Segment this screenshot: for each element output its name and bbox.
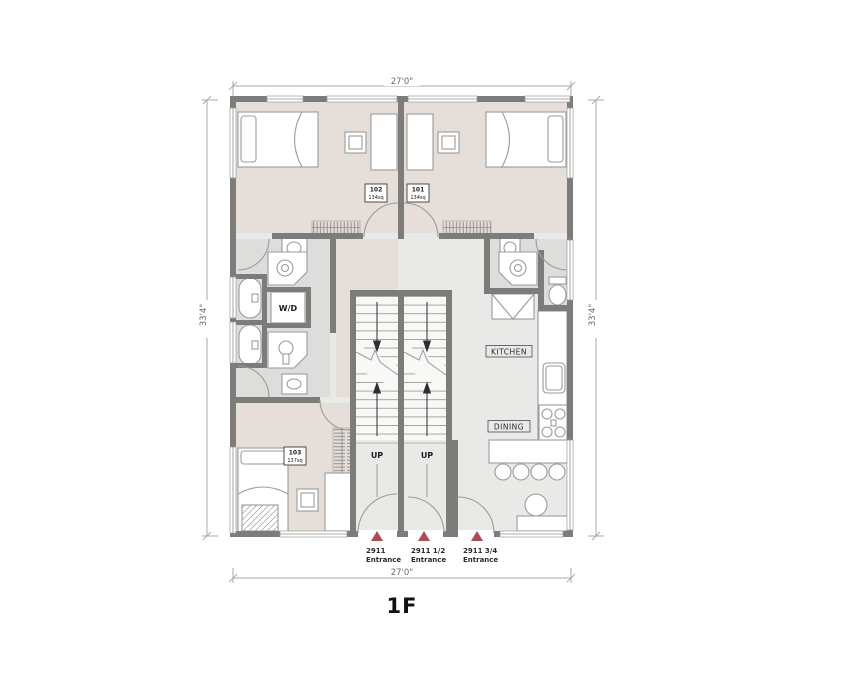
- dining-label: DINING: [488, 421, 530, 433]
- room-area-101: 134sq: [410, 195, 425, 201]
- dimension-left-text: 33'4": [199, 304, 209, 327]
- dining-label-text: DINING: [494, 423, 524, 432]
- wall-niche-2: [236, 320, 262, 325]
- wall-rbath-left: [484, 233, 490, 294]
- bed-102: [238, 112, 318, 167]
- entrance-3-address: 2911 3/4: [463, 547, 497, 555]
- closet-103-cabinet: [325, 473, 351, 531]
- bed-101: [486, 112, 566, 167]
- wall-stair-right: [446, 290, 452, 537]
- entrance-3-label: Entrance: [463, 556, 498, 564]
- entrance-1-address: 2911: [366, 547, 386, 555]
- round-table: [525, 494, 547, 516]
- wardrobe-102: [371, 114, 397, 170]
- stool: [495, 464, 511, 480]
- bed-103: [238, 448, 288, 532]
- room-number-103: 103: [289, 450, 302, 457]
- floor-plan-drawing: UP UP: [0, 0, 853, 676]
- wall-bedroom-divider: [398, 96, 404, 239]
- entrance-2-address: 2911 1/2: [411, 547, 445, 555]
- room-number-102: 102: [370, 187, 383, 194]
- bench: [517, 516, 568, 531]
- kitchen-label-text: KITCHEN: [491, 348, 527, 357]
- stairs-up-label-left: UP: [371, 451, 383, 460]
- dining-island: [489, 440, 568, 463]
- wall-stair-left: [350, 290, 356, 537]
- wall-wd-bottom: [266, 323, 311, 328]
- wall-stair-center: [398, 290, 404, 537]
- room-area-103: 137sq: [287, 458, 302, 464]
- room-tag-103: 103 137sq: [284, 447, 306, 465]
- stool: [531, 464, 547, 480]
- wardrobe-101: [407, 114, 433, 170]
- dimension-top-text: 27'0": [391, 77, 414, 87]
- wall-wd-right: [306, 287, 311, 328]
- room-area-102: 134sq: [368, 195, 383, 201]
- entrance-2-label: Entrance: [411, 556, 446, 564]
- room-tag-101: 101 134sq: [407, 184, 429, 202]
- wall-room103-top: [236, 397, 320, 403]
- dimension-bottom: 27'0": [229, 566, 575, 583]
- wall-bath-right: [330, 233, 336, 333]
- dimension-left: 33'4": [199, 96, 218, 540]
- dimension-right: 33'4": [588, 96, 604, 540]
- dimension-right-text: 33'4": [588, 304, 598, 327]
- stool: [513, 464, 529, 480]
- floor-title: 1F: [387, 594, 418, 618]
- room-tag-102: 102 134sq: [365, 184, 387, 202]
- wall-wd-top: [266, 287, 311, 292]
- toilet-bowl: [549, 285, 566, 305]
- nightstand-103-top: [301, 493, 314, 507]
- wall-bedroom-hall-left: [272, 233, 363, 239]
- fridge: [492, 294, 534, 319]
- stool: [549, 464, 565, 480]
- desk-102-top: [349, 136, 362, 149]
- floor-plan-page: UP UP: [0, 0, 853, 676]
- kitchen-label: KITCHEN: [486, 346, 532, 358]
- dimension-bottom-text: 27'0": [391, 568, 414, 578]
- entrance-1-label: Entrance: [366, 556, 401, 564]
- room-number-101: 101: [412, 187, 425, 194]
- toilet-tank: [549, 277, 566, 284]
- wall-niche-1: [236, 274, 262, 279]
- stairs-up-label-right: UP: [421, 451, 433, 460]
- wall-rbath-bottom: [484, 288, 538, 294]
- corridor-floor: [336, 239, 350, 397]
- dimension-top: 27'0": [229, 74, 575, 96]
- wall-dining: [452, 440, 458, 537]
- desk-101-top: [442, 136, 455, 149]
- laundry-label: W/D: [279, 304, 298, 313]
